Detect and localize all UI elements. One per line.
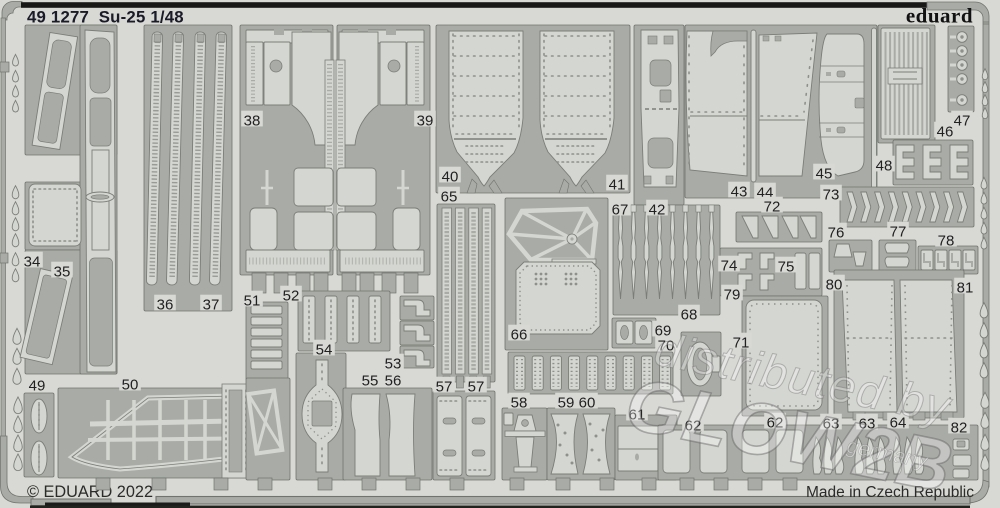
svg-text:77: 77 (890, 223, 907, 240)
svg-text:35: 35 (54, 263, 71, 280)
svg-text:81: 81 (957, 279, 974, 296)
svg-text:37: 37 (203, 296, 220, 313)
svg-text:42: 42 (649, 201, 666, 218)
svg-text:36: 36 (157, 296, 174, 313)
svg-text:66: 66 (511, 326, 528, 343)
svg-text:49: 49 (29, 377, 46, 394)
svg-text:68: 68 (681, 306, 698, 323)
svg-text:46: 46 (937, 123, 954, 140)
svg-text:67: 67 (612, 201, 629, 218)
svg-text:40: 40 (442, 168, 459, 185)
svg-text:72: 72 (764, 198, 781, 215)
svg-text:eduard: eduard (906, 4, 973, 28)
svg-text:80: 80 (826, 276, 843, 293)
svg-text:50: 50 (122, 376, 139, 393)
svg-text:52: 52 (283, 287, 300, 304)
svg-text:78: 78 (938, 232, 955, 249)
svg-text:49 1277 Su-25 1/48: 49 1277 Su-25 1/48 (27, 8, 184, 27)
svg-text:39: 39 (417, 112, 434, 129)
svg-text:73: 73 (823, 186, 840, 203)
svg-text:55: 55 (362, 372, 379, 389)
svg-text:43: 43 (731, 183, 748, 200)
svg-text:74: 74 (721, 257, 738, 274)
svg-text:57: 57 (436, 378, 453, 395)
svg-text:48: 48 (876, 157, 893, 174)
svg-text:59: 59 (558, 394, 575, 411)
svg-text:45: 45 (816, 165, 833, 182)
svg-text:58: 58 (511, 394, 528, 411)
svg-text:54: 54 (316, 341, 333, 358)
svg-text:47: 47 (954, 112, 971, 129)
svg-text:34: 34 (24, 253, 41, 270)
svg-text:57: 57 (468, 378, 485, 395)
svg-text:76: 76 (828, 224, 845, 241)
svg-text:60: 60 (579, 394, 596, 411)
svg-text:51: 51 (244, 292, 261, 309)
svg-text:53: 53 (385, 355, 402, 372)
svg-text:56: 56 (385, 372, 402, 389)
svg-text:41: 41 (609, 176, 626, 193)
svg-text:65: 65 (441, 188, 458, 205)
svg-text:75: 75 (778, 258, 795, 275)
svg-text:© EDUARD 2022: © EDUARD 2022 (27, 483, 153, 501)
svg-text:38: 38 (244, 112, 261, 129)
svg-text:79: 79 (724, 286, 741, 303)
